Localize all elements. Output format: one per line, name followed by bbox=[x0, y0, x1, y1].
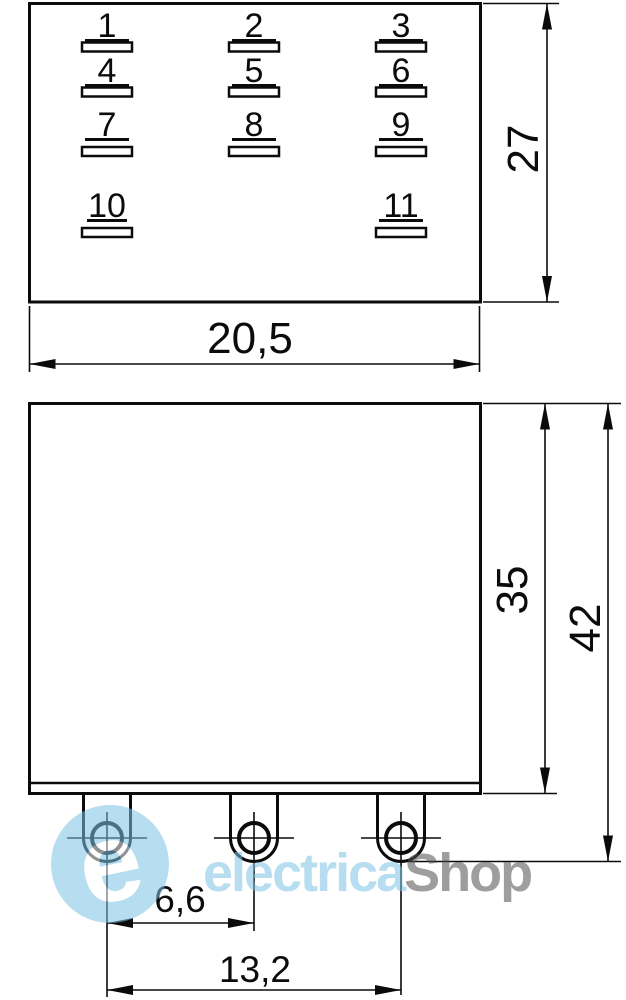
pin-7-slot bbox=[82, 147, 132, 156]
watermark-brand-primary: electrica bbox=[203, 843, 407, 903]
dim-20-5-label: 20,5 bbox=[207, 314, 293, 363]
pin-7: 7 bbox=[82, 106, 132, 156]
dim-27-label: 27 bbox=[499, 125, 548, 174]
pin-6: 6 bbox=[376, 52, 426, 97]
dim-27: 27 bbox=[483, 4, 559, 303]
watermark-brand: electricaShop bbox=[203, 843, 531, 903]
dim-27-arrow-down bbox=[542, 276, 552, 302]
dim-42-arrow-down bbox=[603, 836, 613, 862]
pin-9: 9 bbox=[376, 106, 426, 156]
dim-35-arrow-down bbox=[540, 768, 550, 794]
dim-13-2-arrow-right bbox=[375, 985, 401, 995]
pin-4: 4 bbox=[82, 52, 132, 97]
dim-13-2-label: 13,2 bbox=[219, 949, 291, 990]
dim-35-label: 35 bbox=[488, 566, 537, 615]
dim-20-5-arrow-right bbox=[454, 359, 480, 369]
pin-8: 8 bbox=[229, 106, 279, 156]
pin-11-slot bbox=[376, 228, 426, 237]
pin-8-slot bbox=[229, 147, 279, 156]
dim-13-2-arrow-left bbox=[107, 985, 133, 995]
pin-3: 3 bbox=[376, 7, 426, 52]
pin-11: 11 bbox=[376, 187, 426, 237]
dim-20-5: 20,5 bbox=[30, 306, 480, 372]
side-view-body bbox=[30, 404, 481, 794]
dim-6-6-arrow-right bbox=[228, 918, 254, 928]
dim-13-2: 13,2 bbox=[107, 949, 401, 995]
pin-2: 2 bbox=[229, 7, 279, 52]
dim-27-arrow-up bbox=[542, 4, 552, 30]
dim-42-arrow-up bbox=[603, 404, 613, 430]
pin-1: 1 bbox=[82, 7, 132, 52]
watermark: e electricaShop bbox=[51, 795, 531, 930]
pin-9-slot bbox=[376, 147, 426, 156]
dim-20-5-arrow-left bbox=[30, 359, 56, 369]
dim-35: 35 bbox=[483, 404, 621, 794]
technical-drawing-page: 1 2 3 4 5 6 bbox=[0, 0, 626, 1000]
pin-10-slot bbox=[82, 228, 132, 237]
relay-dimension-diagram: 1 2 3 4 5 6 bbox=[0, 0, 626, 1000]
pin-10: 10 bbox=[82, 187, 132, 237]
dim-35-arrow-up bbox=[540, 404, 550, 430]
pin-5: 5 bbox=[229, 52, 279, 97]
top-view-outline bbox=[30, 4, 481, 303]
top-view: 1 2 3 4 5 6 bbox=[30, 4, 481, 303]
watermark-brand-secondary: Shop bbox=[404, 843, 531, 903]
dim-42-label: 42 bbox=[561, 604, 610, 653]
